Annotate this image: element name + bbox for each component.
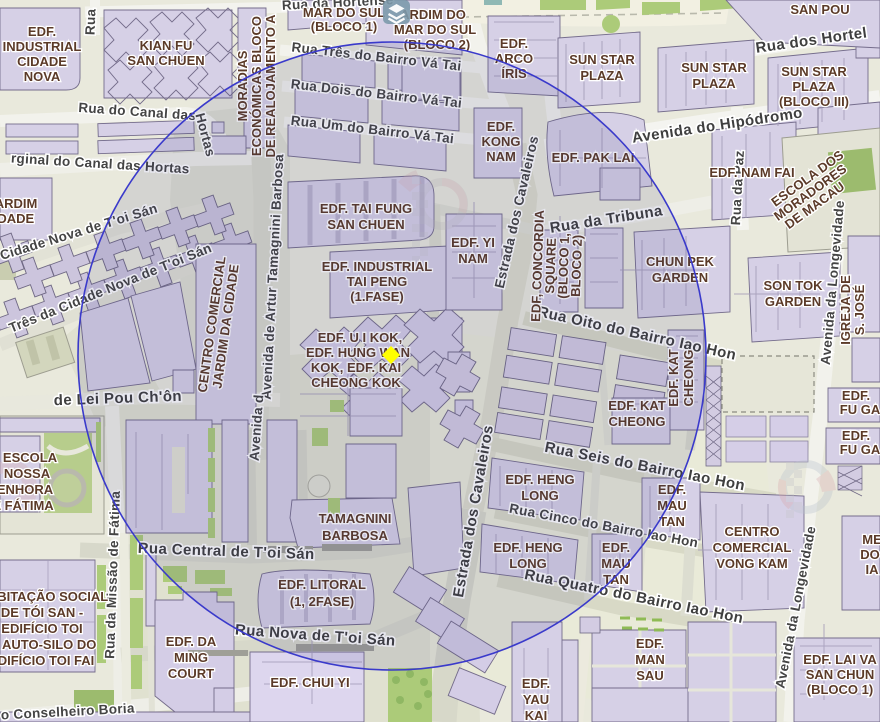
svg-text:MAR DO SUL(BLOCO 1): MAR DO SUL(BLOCO 1) [303,5,385,34]
svg-text:EDF. NAM FAI: EDF. NAM FAI [709,165,794,180]
svg-text:IGREJA DE: IGREJA DE [838,275,853,345]
svg-text:S. JOSÉ: S. JOSÉ [852,284,867,335]
svg-text:SAN POU: SAN POU [790,2,849,17]
svg-text:SON TOKGARDEN: SON TOKGARDEN [764,278,824,309]
svg-text:EDF. LAI VASAN CHUN(BLOCO 1): EDF. LAI VASAN CHUN(BLOCO 1) [803,652,877,697]
svg-text:ESCOLANOSSAENHORAE FÁTIMA: ESCOLANOSSAENHORAE FÁTIMA [0,450,58,513]
svg-text:ARDIMIDADE: ARDIMIDADE [0,196,37,226]
svg-text:EDF. CHUI YI: EDF. CHUI YI [270,675,349,690]
svg-text:Rua: Rua [83,8,99,35]
svg-text:EDF.MANSAU: EDF.MANSAU [635,636,665,683]
svg-text:EDF.YAUKAI: EDF.YAUKAI [522,676,550,722]
